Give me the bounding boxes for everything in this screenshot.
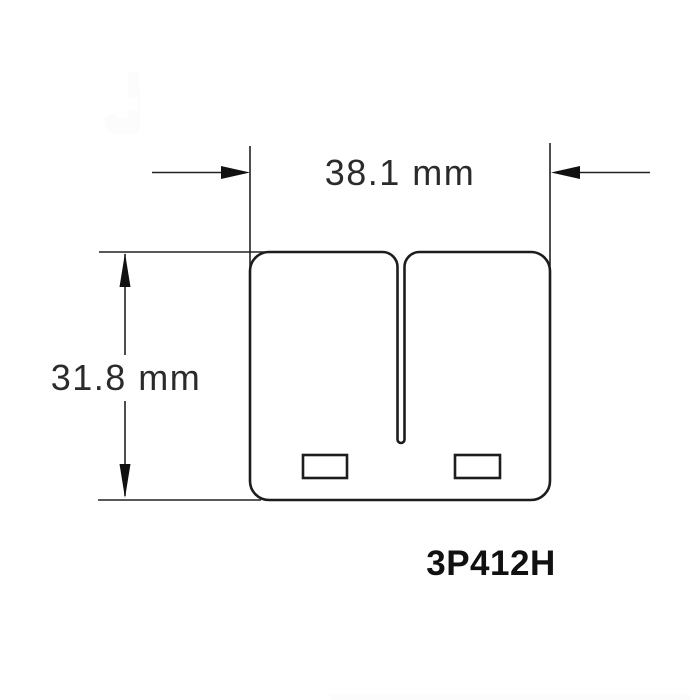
part-outline bbox=[250, 252, 550, 500]
part-number-label: 3P412H bbox=[426, 544, 555, 583]
mount-hole-right bbox=[455, 455, 500, 478]
reed-petal-dimension-drawing: 38.1 mm 31.8 mm 3P412H bbox=[0, 0, 700, 700]
width-dimension: 38.1 mm bbox=[152, 143, 650, 268]
height-dimension: 31.8 mm bbox=[51, 252, 267, 500]
mount-hole-left bbox=[303, 455, 347, 478]
height-dim-label: 31.8 mm bbox=[51, 357, 202, 398]
width-dim-label: 38.1 mm bbox=[325, 152, 476, 193]
arrowhead-left-icon bbox=[551, 166, 580, 179]
arrowhead-up-icon bbox=[120, 253, 131, 287]
technical-drawing-page: 38.1 mm 31.8 mm 3P412H bbox=[0, 0, 700, 700]
arrowhead-right-icon bbox=[221, 166, 250, 179]
arrowhead-down-icon bbox=[120, 464, 131, 498]
